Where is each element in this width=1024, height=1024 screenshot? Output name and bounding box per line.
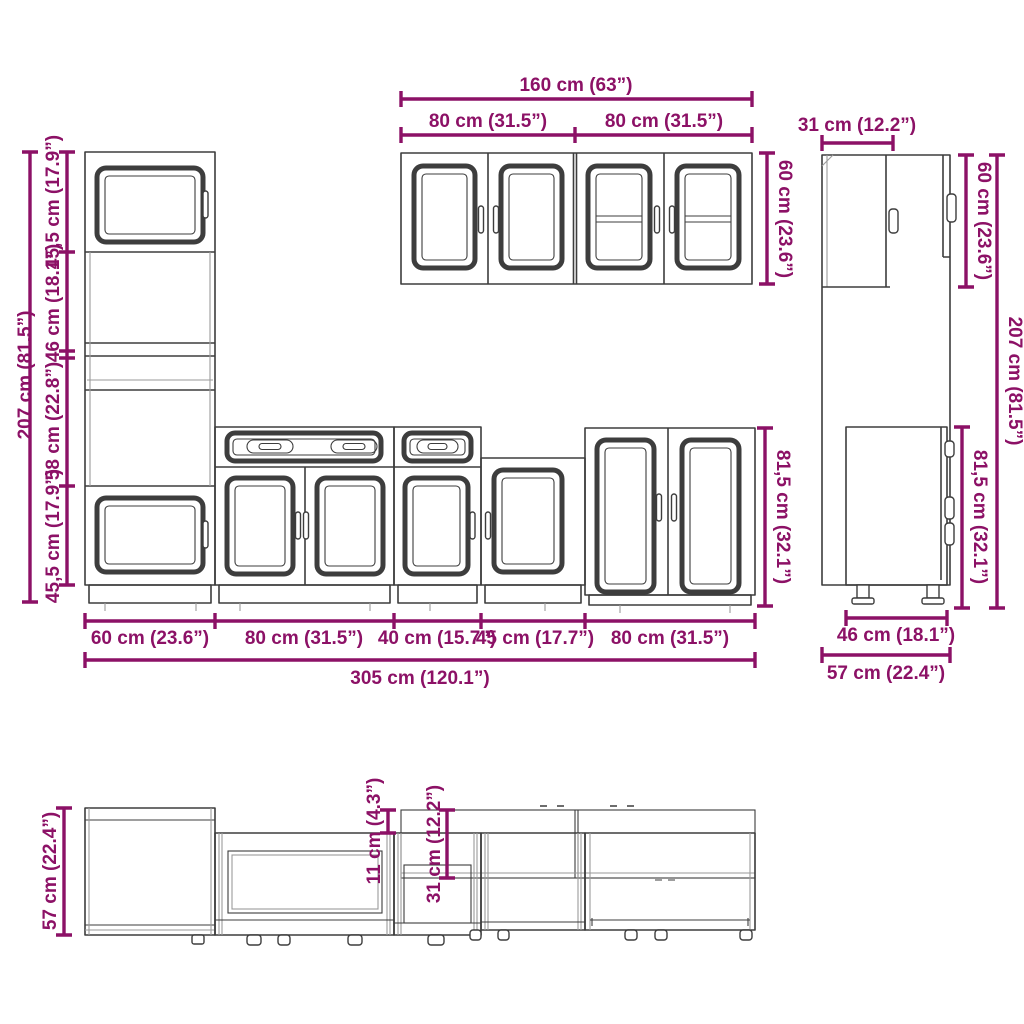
dim-label-bottom-80a: 80 cm (31.5”): [245, 628, 363, 649]
base-45-door: [494, 470, 562, 572]
dim-label-front-total-height: 207 cm (81.5”): [15, 311, 36, 440]
dim-label-seg-58: 58 cm (22.8”): [43, 362, 64, 480]
dim-label-wall-total-width: 160 cm (63”): [519, 75, 632, 96]
dim-label-side-total-height: 207 cm (81.5”): [1004, 317, 1024, 446]
wall-cabinets-front: [401, 153, 752, 284]
dim-label-front-base-height: 81,5 cm (32.1”): [772, 450, 793, 584]
base-cabinet-side: [846, 427, 947, 585]
kitchen-cabinet-dimension-diagram: 207 cm (81.5”) 45,5 cm (17.9”) 46 cm (18…: [0, 0, 1024, 1024]
front-view: [85, 152, 755, 613]
dim-label-side-wall-height: 60 cm (23.6”): [973, 162, 994, 280]
base-40-door: [405, 478, 468, 574]
wall-door-pane-1: [588, 166, 650, 268]
dim-label-wall-left-width: 80 cm (31.5”): [429, 111, 547, 132]
dim-label-bottom-45: 45 cm (17.7”): [476, 628, 594, 649]
dim-label-bottom-60: 60 cm (23.6”): [91, 628, 209, 649]
wall-door-handle-3: [655, 206, 660, 233]
dim-label-top-offset: 11 cm (4.3”): [364, 778, 385, 885]
wall-door-handle-2: [494, 206, 499, 233]
diagram-canvas: 207 cm (81.5”) 45,5 cm (17.9”) 46 cm (18…: [0, 0, 1024, 1024]
base-80r-top: [585, 833, 755, 930]
wall-door-handle-4: [670, 206, 675, 233]
drawer-front-80: [227, 433, 381, 461]
dim-label-bottom-total: 305 cm (120.1”): [350, 668, 489, 689]
feet-top-view: [192, 930, 752, 945]
dim-label-top-depth: 57 cm (22.4”): [40, 812, 61, 930]
tall-cabinet-bottom-door-handle: [203, 521, 208, 548]
dim-label-side-base-height: 81,5 cm (32.1”): [969, 450, 990, 584]
wall-door-glass-1: [414, 166, 475, 268]
drawer-front-40: [404, 433, 471, 461]
dimension-labels: 207 cm (81.5”) 45,5 cm (17.9”) 46 cm (18…: [15, 75, 1024, 930]
base-80-door-right: [317, 478, 383, 574]
wall-cabinet-side-handle: [889, 209, 898, 233]
tall-cabinet-top-door-panel: [97, 168, 203, 242]
side-view: [822, 155, 956, 604]
dim-label-wall-height: 60 cm (23.6”): [774, 160, 795, 278]
dim-label-side-base-depth: 46 cm (18.1”): [837, 625, 955, 646]
dim-label-wall-right-width: 80 cm (31.5”): [605, 111, 723, 132]
wall-door-glass-2: [501, 166, 562, 268]
dim-label-side-top-depth: 31 cm (12.2”): [798, 115, 916, 136]
tall-cabinet-bottom-door-panel: [97, 498, 203, 572]
dim-label-seg-46: 46 cm (18.1”): [43, 244, 64, 362]
base-45-top: [481, 833, 585, 930]
dim-label-seg-455b: 45,5 cm (17.9”): [43, 469, 64, 603]
wall-door-handle-1: [479, 206, 484, 233]
dim-label-side-total-depth: 57 cm (22.4”): [827, 663, 945, 684]
tall-cabinet-top-door-handle: [203, 191, 208, 218]
adjustable-feet: [852, 585, 944, 604]
dim-label-top-wall-depth: 31 cm (12.2”): [424, 785, 445, 903]
tall-cabinet-side-handle: [947, 194, 956, 222]
wall-door-pane-2: [677, 166, 739, 268]
tall-cabinet-top: [85, 808, 215, 935]
dim-label-bottom-80b: 80 cm (31.5”): [611, 628, 729, 649]
tall-cabinet-front: [85, 152, 215, 603]
top-view: [85, 806, 755, 945]
base-80-door-left: [227, 478, 293, 574]
